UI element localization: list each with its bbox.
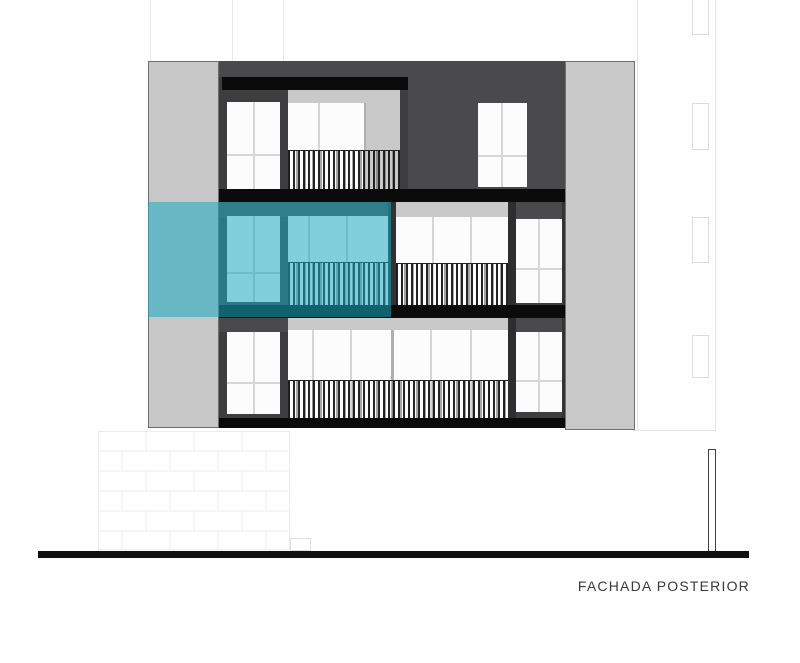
guide-line [150, 0, 151, 61]
window-mullion [516, 268, 562, 270]
floor3-black-band [222, 77, 408, 90]
neighbor-window [692, 0, 709, 35]
window-mullion [227, 154, 280, 156]
grade-step-outline [290, 538, 311, 551]
neighbor-base-line [633, 430, 716, 431]
elevation-drawing: FACHADA POSTERIOR [0, 0, 800, 663]
brick-hatch [98, 431, 290, 550]
neighbor-window [692, 103, 709, 150]
neighbor-edge-line [637, 0, 638, 430]
fence-post [708, 449, 716, 552]
window-mullion [501, 103, 503, 187]
window-mullion [538, 332, 540, 412]
floor2-corner-window [516, 219, 562, 303]
neighbor-edge-line [715, 0, 716, 430]
base-slab [219, 418, 565, 428]
ground-line [38, 551, 749, 558]
floor-slab [219, 189, 565, 202]
window-mullion [538, 219, 540, 303]
floor2-balcony-railing-right [396, 263, 508, 305]
floor1-narrow-window [227, 332, 280, 414]
floor2-corner-header [516, 202, 562, 219]
highlighted-unit-overlay [148, 202, 391, 317]
window-mullion [253, 332, 255, 414]
floor1-header-left [219, 318, 288, 332]
floor1-corner-header [516, 318, 562, 332]
floor3-volume-window [478, 103, 527, 187]
floor1-edge-frame [562, 318, 565, 418]
floor1-pier [508, 318, 516, 418]
guide-line [283, 0, 284, 61]
floor3-header-band [219, 61, 408, 77]
floor3-balcony-railing [288, 150, 400, 189]
floor1-corner-window [516, 332, 562, 412]
neighbor-window [692, 335, 709, 378]
floor3-narrow-window [227, 102, 280, 189]
floor2-pier [508, 202, 516, 318]
drawing-label: FACHADA POSTERIOR [540, 578, 750, 594]
floor2-header-right [396, 202, 508, 217]
floor2-edge-frame [562, 202, 565, 318]
window-mullion [227, 382, 280, 384]
right-wall-strip [565, 61, 635, 430]
window-mullion [478, 155, 527, 157]
window-mullion [516, 380, 562, 382]
neighbor-window [692, 217, 709, 263]
window-mullion [253, 102, 255, 189]
floor1-balcony-railing [288, 380, 508, 418]
guide-line [232, 0, 233, 61]
